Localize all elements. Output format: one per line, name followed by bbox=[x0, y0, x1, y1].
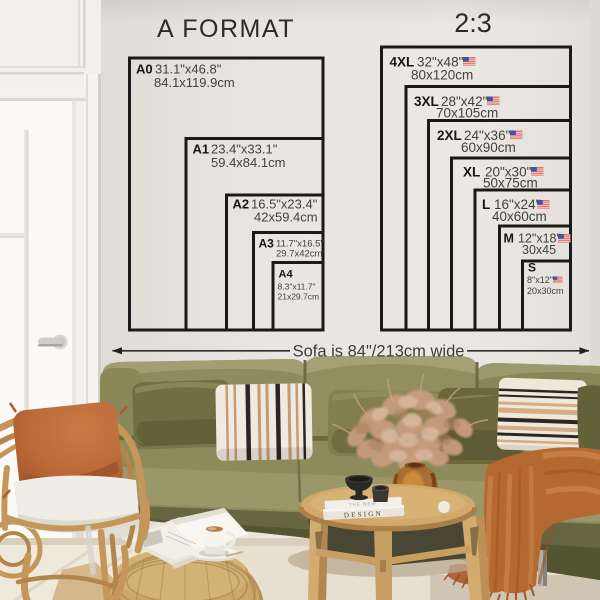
svg-text:XL: XL bbox=[463, 165, 480, 180]
svg-text:S: S bbox=[528, 261, 536, 275]
svg-text:30x45: 30x45 bbox=[522, 243, 556, 257]
svg-text:21x29.7cm: 21x29.7cm bbox=[278, 292, 320, 302]
svg-text:M: M bbox=[504, 232, 514, 246]
svg-text:L: L bbox=[482, 197, 490, 212]
svg-text:A2: A2 bbox=[233, 197, 250, 212]
svg-text:29.7x42cm: 29.7x42cm bbox=[276, 249, 323, 260]
svg-text:60x90cm: 60x90cm bbox=[461, 140, 516, 155]
svg-text:2:3: 2:3 bbox=[454, 8, 492, 38]
svg-text:84.1x119.9cm: 84.1x119.9cm bbox=[154, 75, 235, 90]
svg-text:8.3"x11.7": 8.3"x11.7" bbox=[278, 282, 316, 292]
svg-text:A3: A3 bbox=[259, 237, 275, 251]
svg-text:A4: A4 bbox=[279, 269, 294, 281]
svg-text:40x60cm: 40x60cm bbox=[492, 209, 547, 224]
svg-text:Sofa is 84"/213cm wide: Sofa is 84"/213cm wide bbox=[293, 343, 465, 361]
svg-text:80x120cm: 80x120cm bbox=[411, 68, 473, 83]
svg-text:2XL: 2XL bbox=[437, 128, 462, 143]
svg-text:42x59.4cm: 42x59.4cm bbox=[254, 210, 318, 225]
svg-text:8"x12": 8"x12" bbox=[527, 275, 553, 285]
svg-text:59.4x84.1cm: 59.4x84.1cm bbox=[211, 155, 285, 170]
svg-text:70x105cm: 70x105cm bbox=[436, 106, 498, 121]
svg-text:A0: A0 bbox=[136, 62, 153, 77]
svg-text:A1: A1 bbox=[193, 142, 210, 157]
svg-text:20x30cm: 20x30cm bbox=[527, 286, 564, 296]
svg-text:A FORMAT: A FORMAT bbox=[157, 15, 295, 43]
svg-text:50x75cm: 50x75cm bbox=[483, 176, 538, 191]
